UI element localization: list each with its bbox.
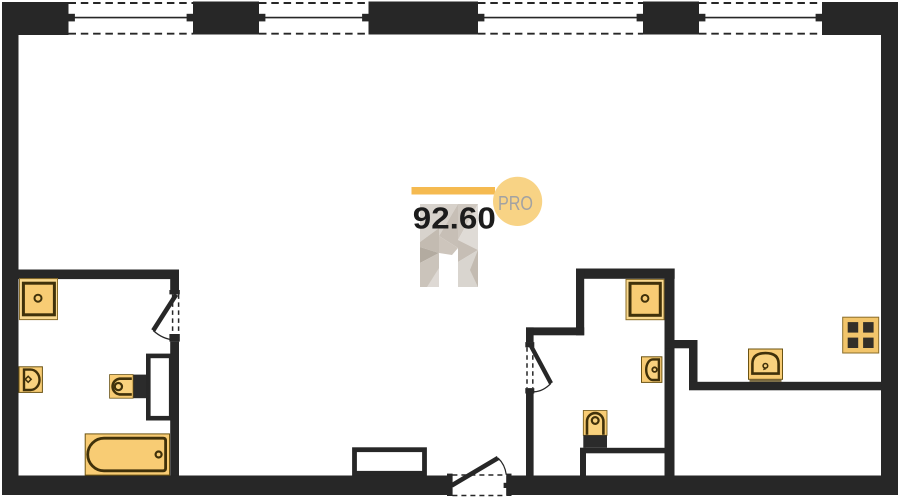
svg-text:PRO: PRO	[498, 193, 533, 215]
svg-text:92.60: 92.60	[413, 202, 496, 236]
